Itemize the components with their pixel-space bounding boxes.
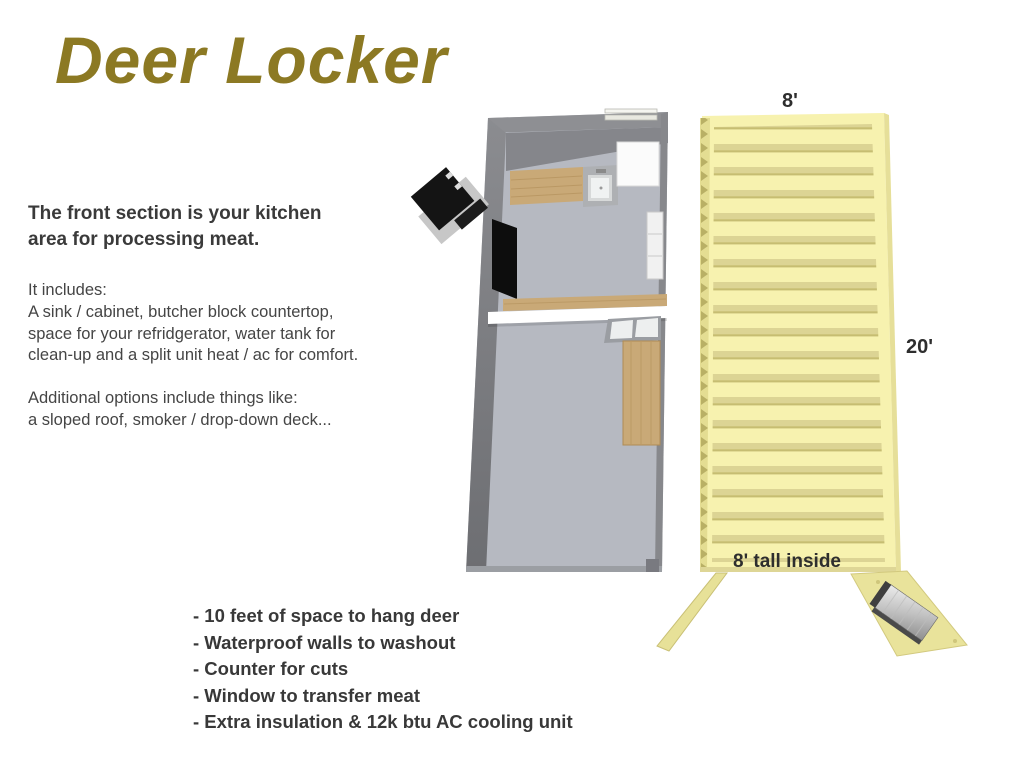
feature-item: - Extra insulation & 12k btu AC cooling … (193, 709, 573, 736)
roof-ridges (712, 124, 885, 562)
cutting-table (623, 341, 660, 445)
feature-item: - Window to transfer meat (193, 683, 573, 710)
dimension-width-label: 8' (772, 90, 808, 113)
roof-supports (657, 571, 967, 656)
kitchen-counter (510, 167, 583, 205)
sink (583, 165, 618, 207)
feature-item: - 10 feet of space to hang deer (193, 603, 573, 630)
intro-includes-text: It includes: A sink / cabinet, butcher b… (28, 280, 358, 367)
bottom-edge-cap (646, 559, 659, 572)
dimension-length-label: 20' (906, 336, 933, 359)
roof-support-left (657, 573, 727, 651)
page-title: Deer Locker (55, 22, 448, 98)
feature-list: - 10 feet of space to hang deer - Waterp… (193, 603, 573, 736)
wall-dark-panel (492, 219, 517, 299)
fridge-space (617, 142, 659, 186)
intro-options-text: Additional options include things like: … (28, 388, 332, 432)
feature-item: - Waterproof walls to washout (193, 630, 573, 657)
feature-item: - Counter for cuts (193, 656, 573, 683)
split-ac-unit (405, 161, 490, 245)
roof-panel (700, 113, 901, 572)
storage-cabinet (647, 212, 663, 279)
transfer-window (604, 316, 661, 343)
dimension-height-label: 8' tall inside (733, 551, 841, 573)
floorplan-building (405, 109, 668, 572)
bottom-edge (466, 566, 662, 572)
slide: Deer Locker The front section is your ki… (0, 0, 1024, 768)
floorplan-illustration (395, 85, 980, 670)
support-bolt (953, 639, 957, 643)
intro-heading: The front section is your kitchen area f… (28, 201, 322, 253)
support-bolt (876, 580, 880, 584)
